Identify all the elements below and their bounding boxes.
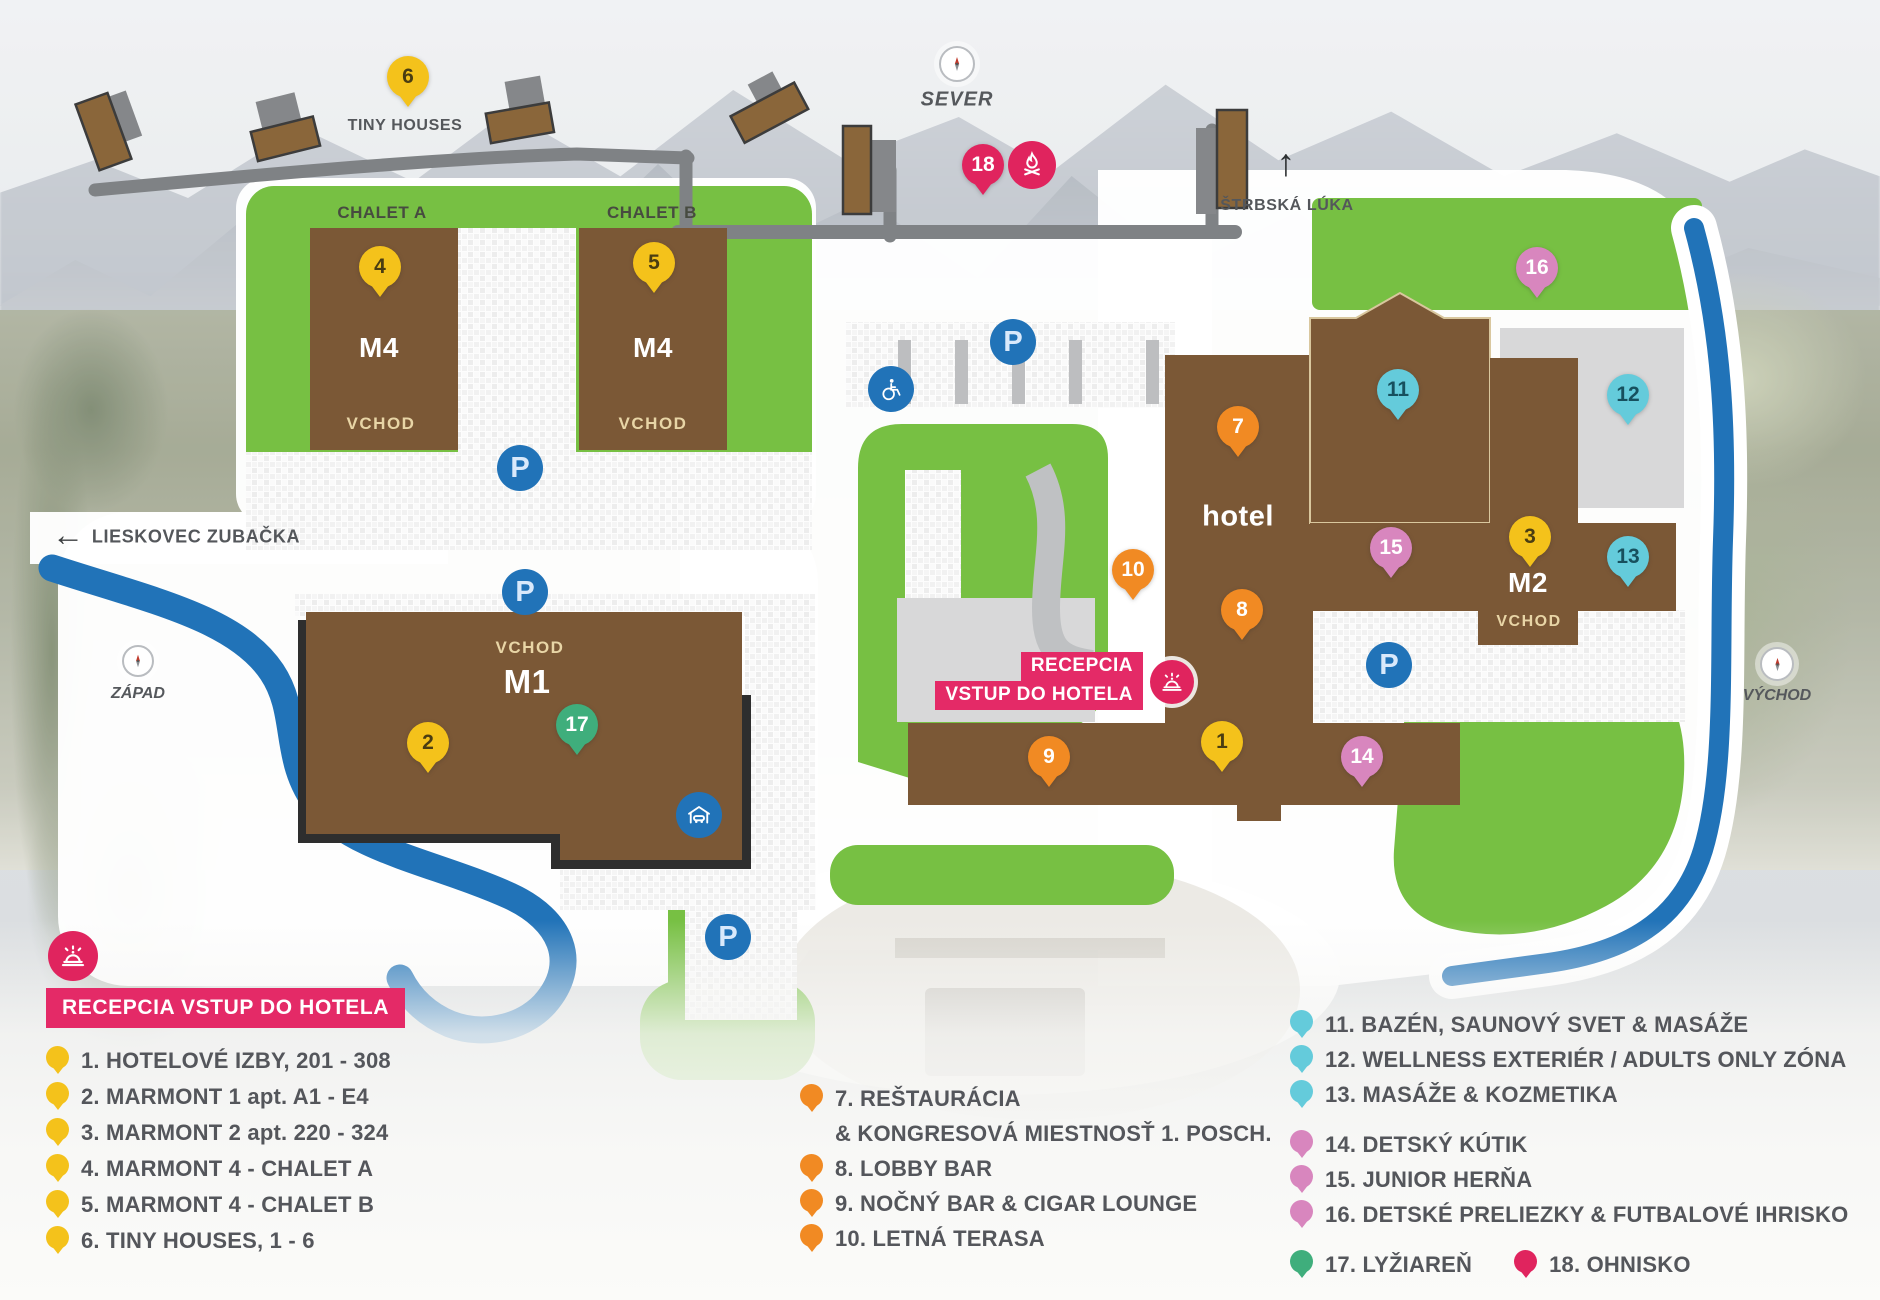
legend-marker-icon <box>1290 1200 1313 1223</box>
legend-marker-icon <box>1290 1130 1313 1153</box>
legend-item: 2. MARMONT 1 apt. A1 - E4 <box>46 1084 391 1110</box>
legend-marker-icon <box>800 1154 823 1177</box>
legend-marker-icon <box>1290 1080 1313 1103</box>
legend-marker-icon <box>46 1226 69 1249</box>
legend-item: 3. MARMONT 2 apt. 220 - 324 <box>46 1120 391 1146</box>
legend-item: 7. REŠTAURÁCIA <box>800 1086 1272 1112</box>
legend-marker-icon <box>46 1082 69 1105</box>
legend-marker-icon <box>46 1046 69 1069</box>
legend-marker-icon <box>800 1189 823 1212</box>
legend-item: 15. JUNIOR HERŇA <box>1290 1167 1848 1193</box>
legend-item: 8. LOBBY BAR <box>800 1156 1272 1182</box>
legend-marker-icon <box>1290 1010 1313 1033</box>
legend-column-wellness: 11. BAZÉN, SAUNOVÝ SVET & MASÁŽE12. WELL… <box>1290 1012 1848 1278</box>
legend-item: 9. NOČNÝ BAR & CIGAR LOUNGE <box>800 1191 1272 1217</box>
legend-item: 6. TINY HOUSES, 1 - 6 <box>46 1228 391 1254</box>
legend-marker-icon <box>800 1224 823 1247</box>
legend-item: 5. MARMONT 4 - CHALET B <box>46 1192 391 1218</box>
legend-reception-badge: RECEPCIA VSTUP DO HOTELA <box>46 988 405 1028</box>
legend: RECEPCIA VSTUP DO HOTELA 1. HOTELOVÉ IZB… <box>0 0 1880 1300</box>
legend-item: 12. WELLNESS EXTERIÉR / ADULTS ONLY ZÓNA <box>1290 1047 1848 1073</box>
legend-item: 16. DETSKÉ PRELIEZKY & FUTBALOVÉ IHRISKO <box>1290 1202 1848 1228</box>
legend-marker-icon <box>1290 1165 1313 1188</box>
legend-marker-icon <box>46 1118 69 1141</box>
legend-marker-icon <box>800 1084 823 1107</box>
legend-marker-icon <box>46 1190 69 1213</box>
resort-map: TINY HOUSES SEVER ŠTRBSKÁ LÚKA ↑ CHALET … <box>0 0 1880 1300</box>
legend-marker-icon <box>46 1154 69 1177</box>
legend-marker-icon <box>1514 1250 1537 1273</box>
legend-column-dining: 7. REŠTAURÁCIA& KONGRESOVÁ MIESTNOSŤ 1. … <box>800 1086 1272 1252</box>
legend-item: 17. LYŽIAREŇ18. OHNISKO <box>1290 1252 1848 1278</box>
legend-item: 14. DETSKÝ KÚTIK <box>1290 1132 1848 1158</box>
legend-item: & KONGRESOVÁ MIESTNOSŤ 1. POSCH. <box>835 1121 1272 1147</box>
legend-item: 4. MARMONT 4 - CHALET A <box>46 1156 391 1182</box>
legend-marker-icon <box>1290 1045 1313 1068</box>
legend-column-accommodation: 1. HOTELOVÉ IZBY, 201 - 3082. MARMONT 1 … <box>46 1048 391 1254</box>
legend-item: 13. MASÁŽE & KOZMETIKA <box>1290 1082 1848 1108</box>
legend-marker-icon <box>1290 1250 1313 1273</box>
legend-item: 1. HOTELOVÉ IZBY, 201 - 308 <box>46 1048 391 1074</box>
reception-bell-legend-icon <box>48 931 98 981</box>
legend-item: 11. BAZÉN, SAUNOVÝ SVET & MASÁŽE <box>1290 1012 1848 1038</box>
legend-item: 10. LETNÁ TERASA <box>800 1226 1272 1252</box>
